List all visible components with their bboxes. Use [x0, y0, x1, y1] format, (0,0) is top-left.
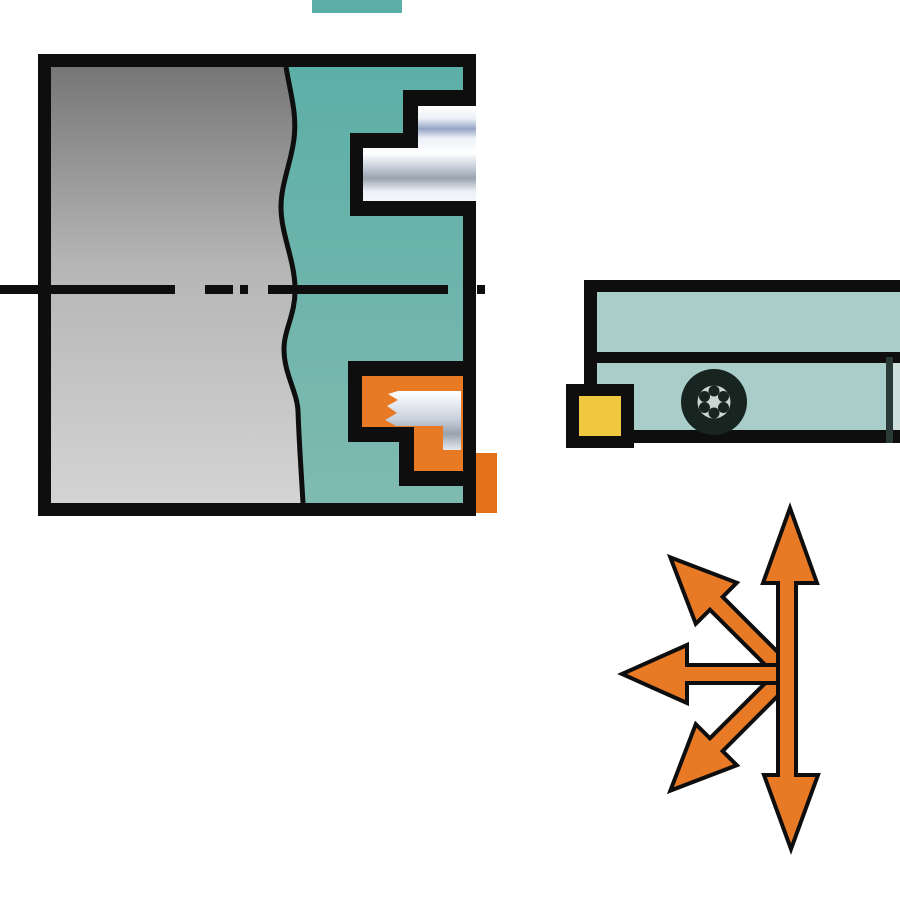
tool-holder — [566, 280, 900, 448]
centerline — [0, 285, 485, 294]
insert-outline-bottom — [399, 471, 476, 486]
holder-right-edge — [886, 357, 893, 443]
screw-torx-lobe — [718, 391, 729, 402]
machining-illustration — [0, 0, 900, 900]
holder-lower-shank — [597, 363, 900, 432]
centerline-dash — [0, 285, 175, 294]
holder-front-edge — [584, 280, 597, 390]
centerline-dot — [477, 285, 485, 294]
groove-outline-bottom — [350, 201, 476, 216]
holder-mid-edge — [597, 352, 900, 363]
screw-torx-lobe — [709, 386, 720, 397]
holder-right-highlight — [893, 363, 900, 430]
centerline-dash — [268, 285, 448, 294]
insert-outline-top — [348, 361, 476, 376]
clamp-screw-icon — [681, 369, 747, 435]
holder-upper-shank — [597, 292, 900, 354]
holder-top-edge — [584, 280, 900, 292]
insert-protruding-tab — [476, 453, 497, 513]
screw-torx-lobe — [718, 402, 729, 413]
screw-torx-lobe — [709, 408, 720, 419]
screw-torx-lobe — [699, 402, 710, 413]
centerline-dot — [240, 285, 248, 294]
screw-torx-lobe — [699, 391, 710, 402]
centerline-dash — [205, 285, 233, 294]
holder-bottom-edge — [630, 430, 900, 443]
machining-diagram — [0, 0, 900, 900]
cutting-insert — [579, 396, 621, 436]
top-edge-fragment — [312, 0, 402, 13]
